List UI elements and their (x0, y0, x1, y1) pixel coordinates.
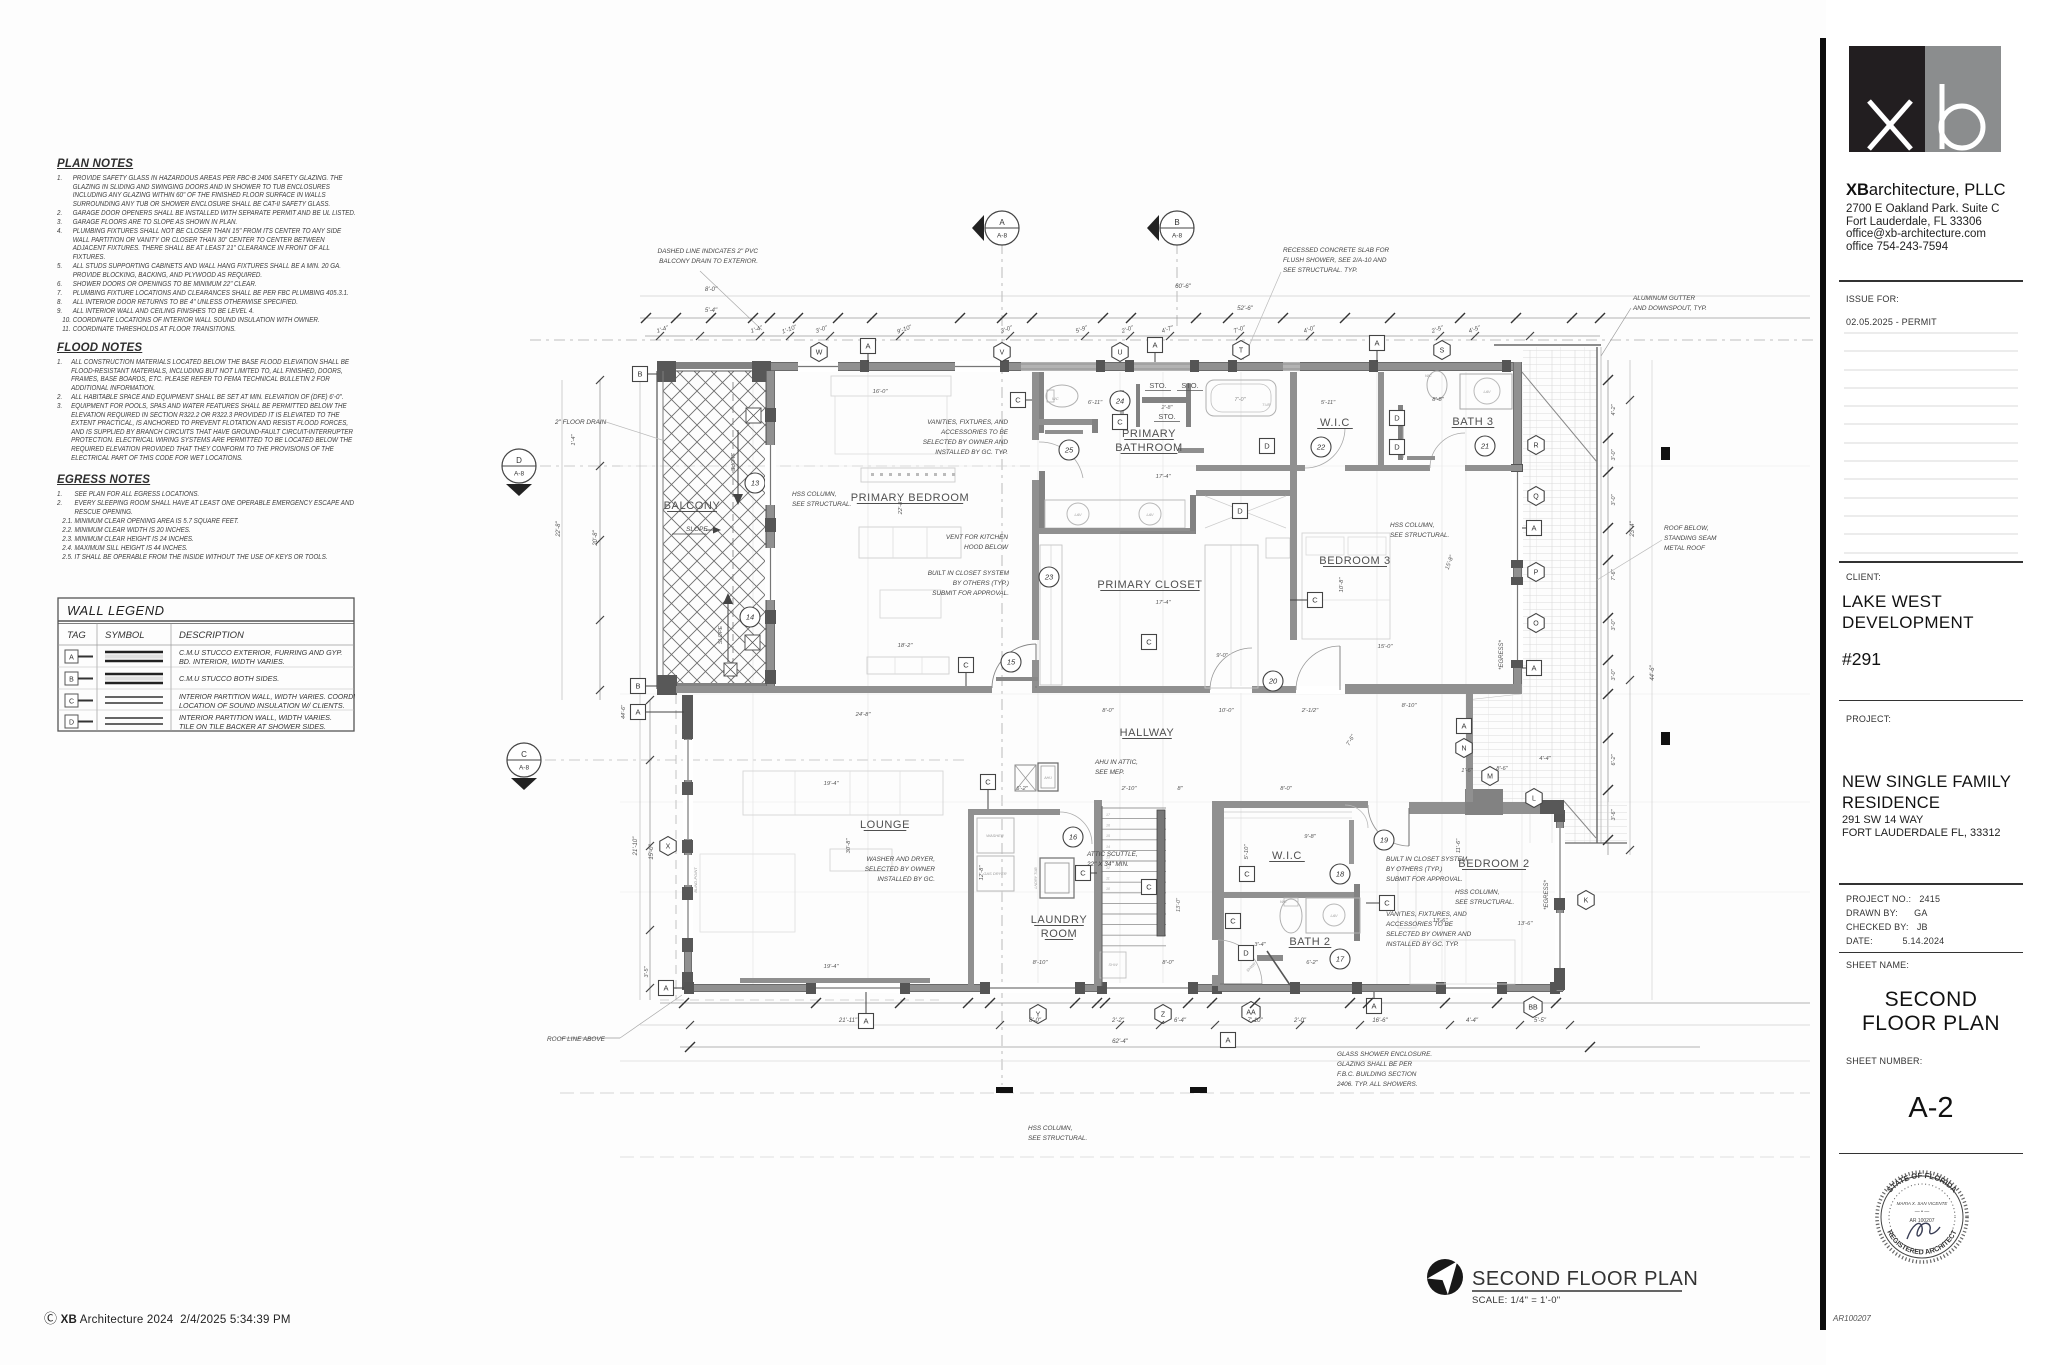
svg-text:17'-4": 17'-4" (1156, 474, 1172, 480)
svg-text:D: D (1394, 443, 1400, 452)
svg-text:C: C (963, 661, 969, 670)
svg-text:A-8: A-8 (997, 233, 1008, 240)
svg-text:7'-0": 7'-0" (1235, 397, 1247, 403)
svg-text:A-8: A-8 (1172, 233, 1183, 240)
svg-text:1'-4": 1'-4" (571, 433, 577, 445)
svg-text:19'-4": 19'-4" (824, 964, 840, 970)
svg-text:WC: WC (1280, 899, 1287, 904)
svg-text:9'-8": 9'-8" (1304, 834, 1316, 840)
svg-text:ROOF LINE ABOVE: ROOF LINE ABOVE (547, 1036, 606, 1043)
svg-text:30'-8": 30'-8" (846, 838, 852, 854)
svg-text:60'-6": 60'-6" (1175, 283, 1192, 290)
svg-text:10'-0": 10'-0" (1219, 708, 1235, 714)
svg-text:BALCONY DRAIN TO EXTERIOR.: BALCONY DRAIN TO EXTERIOR. (659, 258, 758, 265)
svg-text:ALUMINUM GUTTER: ALUMINUM GUTTER (1632, 295, 1696, 302)
svg-text:BLIND-POINT: BLIND-POINT (693, 867, 698, 893)
svg-text:20: 20 (1268, 677, 1278, 686)
svg-text:22'-8": 22'-8" (556, 520, 562, 537)
svg-text:8'-0": 8'-0" (1162, 960, 1174, 966)
svg-text:LNDRY TUB: LNDRY TUB (1034, 867, 1038, 889)
svg-text:22'-8": 22'-8" (898, 499, 904, 516)
svg-text:AA: AA (1246, 1010, 1256, 1017)
svg-text:V: V (1000, 350, 1005, 357)
svg-text:D: D (1394, 414, 1400, 423)
svg-text:BY OTHERS (TYP.): BY OTHERS (TYP.) (953, 580, 1009, 587)
svg-text:BEDROOM 3: BEDROOM 3 (1319, 555, 1390, 567)
svg-text:WC: WC (1425, 373, 1432, 378)
svg-text:STATE OF FLORIDA: STATE OF FLORIDA (1885, 1171, 1959, 1195)
svg-text:STO.: STO. (1158, 412, 1175, 421)
svg-text:AHU IN ATTIC,: AHU IN ATTIC, (1094, 759, 1138, 766)
svg-text:W: W (816, 350, 823, 357)
svg-text:6'-2": 6'-2" (1016, 786, 1028, 792)
svg-text:U: U (1117, 350, 1122, 357)
svg-text:T: T (1239, 348, 1244, 355)
svg-text:20'-8": 20'-8" (593, 529, 599, 546)
svg-text:A: A (863, 1017, 868, 1026)
svg-text:ROOM: ROOM (1041, 928, 1078, 940)
svg-text:LAV: LAV (1075, 513, 1082, 517)
svg-text:7'-0": 7'-0" (1233, 325, 1247, 335)
svg-text:BALCONY: BALCONY (664, 500, 721, 512)
svg-text:BB: BB (1528, 1005, 1538, 1012)
svg-text:A: A (1152, 341, 1157, 350)
svg-text:LOUNGE: LOUNGE (860, 819, 910, 831)
svg-text:6'-4": 6'-4" (1174, 1018, 1187, 1024)
svg-text:WASHER: WASHER (986, 833, 1004, 838)
svg-text:LAV: LAV (1331, 914, 1338, 918)
svg-text:2'-1/2": 2'-1/2" (1301, 708, 1319, 714)
svg-text:BUILT IN CLOSET SYSTEM: BUILT IN CLOSET SYSTEM (928, 570, 1010, 577)
svg-text:19: 19 (1380, 836, 1389, 845)
svg-text:SEE STRUCTURAL.: SEE STRUCTURAL. (1455, 899, 1514, 906)
svg-text:A: A (865, 342, 870, 351)
svg-text:HSS COLUMN,: HSS COLUMN, (1028, 1125, 1073, 1132)
svg-text:3'-4": 3'-4" (1254, 942, 1266, 948)
svg-text:24'-8": 24'-8" (855, 712, 872, 718)
svg-text:HALLWAY: HALLWAY (1120, 727, 1175, 739)
svg-text:15'-8": 15'-8" (1445, 554, 1456, 571)
svg-text:GLASS SHOWER ENCLOSURE.: GLASS SHOWER ENCLOSURE. (1337, 1051, 1432, 1058)
svg-text:3'-0": 3'-0" (1611, 493, 1617, 505)
svg-text:SUBMIT FOR APPROVAL.: SUBMIT FOR APPROVAL. (932, 590, 1009, 597)
svg-text:13'-6": 13'-6" (1433, 918, 1449, 924)
svg-text:M: M (1487, 774, 1493, 781)
svg-text:SELECTED BY OWNER AND: SELECTED BY OWNER AND (1386, 931, 1472, 938)
svg-text:11: 11 (1106, 877, 1110, 881)
svg-text:FLUSH SHOWER, SEE 2/A-10 AND: FLUSH SHOWER, SEE 2/A-10 AND (1283, 257, 1387, 264)
svg-text:LAUNDRY: LAUNDRY (1031, 914, 1088, 926)
svg-text:A: A (1461, 722, 1466, 731)
svg-text:SELECTED BY OWNER: SELECTED BY OWNER (865, 866, 936, 873)
svg-text:STANDING SEAM: STANDING SEAM (1664, 535, 1717, 542)
svg-text:BATH 3: BATH 3 (1452, 416, 1493, 428)
svg-text:SLOPE: SLOPE (686, 526, 708, 533)
svg-text:12'-8": 12'-8" (979, 865, 985, 881)
svg-text:A: A (663, 984, 668, 993)
svg-text:SEE MEP.: SEE MEP. (1095, 769, 1124, 776)
svg-text:3'-5": 3'-5" (644, 965, 650, 977)
svg-text:9'-0": 9'-0" (1216, 653, 1228, 659)
svg-text:SHWR: SHWR (1246, 962, 1257, 973)
svg-text:13'-0": 13'-0" (1176, 897, 1182, 912)
svg-text:3'-0": 3'-0" (815, 325, 829, 335)
svg-text:C: C (985, 778, 991, 787)
svg-text:5'-10": 5'-10" (1244, 844, 1250, 860)
svg-text:5'-5": 5'-5" (1534, 1018, 1547, 1024)
svg-text:19'-4": 19'-4" (824, 781, 840, 787)
svg-text:C: C (1312, 596, 1318, 605)
svg-text:PRIMARY BEDROOM: PRIMARY BEDROOM (851, 492, 970, 504)
svg-text:P: P (1534, 570, 1539, 577)
svg-text:22" X 34" MIN.: 22" X 34" MIN. (1086, 861, 1129, 868)
svg-text:5'-11": 5'-11" (1321, 400, 1336, 406)
svg-text:7'-6": 7'-6" (1611, 568, 1617, 580)
svg-text:24: 24 (1115, 397, 1124, 406)
svg-text:W.I.C: W.I.C (1272, 850, 1302, 862)
svg-text:8": 8" (1177, 786, 1183, 792)
svg-text:8'-6": 8'-6" (1496, 766, 1508, 772)
svg-text:W.I.C: W.I.C (1320, 417, 1350, 429)
svg-text:B: B (1174, 218, 1179, 227)
svg-text:21: 21 (1480, 442, 1489, 451)
svg-text:21'-10": 21'-10" (633, 836, 639, 856)
svg-text:4'-2": 4'-2" (1611, 403, 1617, 415)
svg-text:D: D (1237, 507, 1243, 516)
svg-text:PRIMARY: PRIMARY (1122, 428, 1176, 440)
svg-text:8'-0": 8'-0" (705, 286, 718, 293)
svg-text:WASHER AND DRYER,: WASHER AND DRYER, (866, 856, 935, 863)
svg-text:6'-2": 6'-2" (1611, 753, 1617, 765)
svg-text:8'-0": 8'-0" (1102, 708, 1114, 714)
svg-text:7'-6": 7'-6" (1346, 733, 1357, 747)
svg-text:21'-11": 21'-11" (838, 1018, 858, 1024)
svg-text:C: C (521, 750, 527, 759)
svg-text:STO.: STO. (1149, 381, 1166, 390)
svg-text:A: A (1374, 339, 1379, 348)
svg-text:HSS COLUMN,: HSS COLUMN, (792, 491, 837, 498)
svg-text:INSTALLED BY GC. TYP.: INSTALLED BY GC. TYP. (1386, 941, 1459, 948)
svg-text:SECOND FLOOR PLAN: SECOND FLOOR PLAN (1472, 1268, 1698, 1290)
svg-text:4'-0": 4'-0" (1303, 325, 1317, 335)
svg-text:K: K (1584, 898, 1589, 905)
svg-text:SELECTED BY OWNER AND: SELECTED BY OWNER AND (923, 439, 1009, 446)
svg-text:15'-0": 15'-0" (1378, 644, 1394, 650)
svg-text:9'-10": 9'-10" (896, 324, 913, 335)
svg-text:SLOPE: SLOPE (718, 625, 724, 644)
svg-text:7'-10": 7'-10" (1247, 1018, 1263, 1024)
svg-text:SEE STRUCTURAL.: SEE STRUCTURAL. (792, 501, 851, 508)
svg-text:D: D (516, 456, 522, 465)
svg-text:A-8: A-8 (519, 765, 530, 772)
svg-text:RECESSED CONCRETE SLAB FOR: RECESSED CONCRETE SLAB FOR (1283, 247, 1390, 254)
svg-text:A: A (999, 218, 1005, 227)
svg-text:*EGRESS*: *EGRESS* (1499, 640, 1505, 670)
svg-text:PRIMARY CLOSET: PRIMARY CLOSET (1097, 579, 1202, 591)
svg-text:C: C (1384, 899, 1390, 908)
svg-text:HSS COLUMN,: HSS COLUMN, (1390, 522, 1435, 529)
svg-text:22: 22 (1316, 443, 1326, 452)
svg-text:A-8: A-8 (514, 471, 525, 478)
svg-text:14: 14 (746, 613, 754, 622)
svg-text:A: A (1531, 664, 1536, 673)
svg-text:62'-4": 62'-4" (1112, 1038, 1129, 1045)
svg-text:C: C (1146, 638, 1152, 647)
svg-text:BATHROOM: BATHROOM (1115, 442, 1183, 454)
svg-text:17: 17 (1336, 955, 1345, 964)
svg-text:23'-4": 23'-4" (1630, 520, 1636, 537)
svg-text:Q: Q (1533, 494, 1539, 501)
svg-text:— • —: — • — (1915, 1209, 1930, 1215)
svg-text:13'-6": 13'-6" (1518, 921, 1534, 927)
svg-text:*EGRESS*: *EGRESS* (1544, 880, 1550, 910)
svg-text:SUBMIT FOR APPROVAL.: SUBMIT FOR APPROVAL. (1386, 876, 1463, 883)
svg-text:4'-5": 4'-5" (1468, 325, 1482, 335)
svg-text:SEE STRUCTURAL.: SEE STRUCTURAL. (1028, 1135, 1087, 1142)
svg-text:HOOD BELOW: HOOD BELOW (964, 544, 1009, 551)
svg-text:SHW: SHW (1108, 962, 1119, 967)
svg-text:ATTIC SCUTTLE,: ATTIC SCUTTLE, (1086, 851, 1138, 858)
svg-text:O: O (1533, 621, 1539, 628)
svg-text:B: B (635, 682, 640, 691)
svg-text:3'-6": 3'-6" (1611, 808, 1617, 820)
svg-text:C: C (1146, 883, 1152, 892)
svg-text:3'-0": 3'-0" (1611, 448, 1617, 460)
svg-text:DASHED LINE INDICATES 2" PVC: DASHED LINE INDICATES 2" PVC (657, 248, 758, 255)
svg-text:VANITIES, FIXTURES, AND: VANITIES, FIXTURES, AND (927, 419, 1008, 426)
svg-text:16'-0": 16'-0" (873, 389, 889, 395)
svg-text:X: X (666, 844, 671, 851)
svg-text:C: C (1230, 917, 1236, 926)
svg-text:VENT FOR KITCHEN: VENT FOR KITCHEN (946, 534, 1009, 541)
svg-text:A: A (1371, 1002, 1376, 1011)
svg-text:3'-0": 3'-0" (1611, 618, 1617, 630)
svg-text:AR 100207: AR 100207 (1909, 1218, 1934, 1224)
svg-text:SLOPE: SLOPE (729, 453, 735, 472)
svg-text:15'-0": 15'-0" (649, 843, 655, 859)
svg-text:44'-6": 44'-6" (621, 704, 627, 719)
svg-text:A: A (635, 708, 640, 717)
svg-text:C: C (1117, 418, 1123, 427)
svg-text:16'-6": 16'-6" (1372, 1018, 1388, 1024)
svg-text:15: 15 (1106, 834, 1110, 838)
svg-text:C: C (1244, 870, 1250, 879)
svg-text:8'-8": 8'-8" (1432, 397, 1444, 403)
svg-text:18'-2": 18'-2" (898, 643, 914, 649)
svg-text:2'-0": 2'-0" (1293, 1018, 1307, 1024)
svg-text:15: 15 (1007, 658, 1016, 667)
svg-text:BY OTHERS (TYP.): BY OTHERS (TYP.) (1386, 866, 1442, 873)
svg-text:WC: WC (1052, 396, 1059, 401)
svg-text:GAS DRYER: GAS DRYER (983, 871, 1007, 876)
svg-text:D: D (1243, 949, 1249, 958)
svg-text:R: R (1533, 443, 1538, 450)
svg-text:BUILT IN CLOSET SYSTEM: BUILT IN CLOSET SYSTEM (1386, 856, 1468, 863)
svg-text:25: 25 (1064, 446, 1074, 455)
svg-text:LAV: LAV (1484, 390, 1491, 394)
svg-text:13: 13 (751, 479, 760, 488)
svg-text:8'-10": 8'-10" (1033, 960, 1049, 966)
svg-text:L: L (1532, 796, 1536, 803)
svg-text:17'-4": 17'-4" (1156, 600, 1172, 606)
svg-text:MARIA X. SAN VICENTE: MARIA X. SAN VICENTE (1897, 1201, 1949, 1206)
svg-text:METAL ROOF: METAL ROOF (1664, 545, 1706, 552)
svg-text:SEE STRUCTURAL.: SEE STRUCTURAL. (1390, 532, 1449, 539)
svg-text:C: C (1015, 396, 1021, 405)
svg-text:8'-10": 8'-10" (1402, 703, 1418, 709)
svg-text:C: C (1080, 869, 1086, 878)
svg-text:S: S (1440, 348, 1445, 355)
svg-text:AHU: AHU (1043, 776, 1052, 780)
svg-text:INSTALLED BY GC. TYP.: INSTALLED BY GC. TYP. (935, 449, 1008, 456)
svg-text:SCALE: 1/4" = 1'-0": SCALE: 1/4" = 1'-0" (1472, 1295, 1560, 1306)
svg-text:AND DOWNSPOUT, TYP.: AND DOWNSPOUT, TYP. (1632, 305, 1707, 312)
svg-text:4'-4": 4'-4" (1539, 756, 1551, 762)
svg-text:STO.: STO. (1181, 381, 1198, 390)
svg-text:Z: Z (1161, 1012, 1166, 1019)
svg-text:BATH 2: BATH 2 (1289, 936, 1330, 948)
svg-text:ACCESSORIES TO BE: ACCESSORIES TO BE (940, 429, 1009, 436)
svg-text:14: 14 (1106, 845, 1110, 849)
svg-text:2'-10": 2'-10" (1121, 786, 1138, 792)
svg-text:5'-4": 5'-4" (705, 307, 718, 314)
svg-text:2'-8": 2'-8" (1161, 405, 1174, 411)
svg-text:B: B (637, 370, 642, 379)
svg-text:GLAZING SHALL BE PER: GLAZING SHALL BE PER (1337, 1061, 1413, 1068)
svg-text:6'-11": 6'-11" (1088, 400, 1103, 406)
svg-text:16: 16 (1106, 824, 1110, 828)
svg-text:8'-0": 8'-0" (1029, 1018, 1042, 1024)
svg-text:BEDROOM 2: BEDROOM 2 (1458, 858, 1529, 870)
svg-text:ROOF BELOW,: ROOF BELOW, (1664, 525, 1709, 532)
svg-text:11'-6": 11'-6" (1456, 838, 1462, 853)
svg-text:F.B.C. BUILDING SECTION: F.B.C. BUILDING SECTION (1337, 1071, 1417, 1078)
svg-text:SEE STRUCTURAL. TYP.: SEE STRUCTURAL. TYP. (1283, 267, 1357, 274)
svg-text:8'-0": 8'-0" (1280, 786, 1292, 792)
svg-text:VANITIES, FIXTURES, AND: VANITIES, FIXTURES, AND (1386, 911, 1467, 918)
svg-text:INSTALLED BY GC.: INSTALLED BY GC. (877, 876, 935, 883)
svg-text:1'-6": 1'-6" (1461, 768, 1473, 774)
svg-text:18: 18 (1336, 870, 1345, 879)
svg-text:16: 16 (1069, 833, 1078, 842)
svg-text:2406. TYP. ALL SHOWERS.: 2406. TYP. ALL SHOWERS. (1336, 1081, 1418, 1088)
svg-text:LAV: LAV (1147, 513, 1154, 517)
svg-text:4'-4": 4'-4" (1466, 1018, 1479, 1024)
svg-text:D: D (1264, 442, 1270, 451)
svg-text:2'-2": 2'-2" (1111, 1018, 1125, 1024)
svg-text:A: A (1531, 524, 1536, 533)
svg-text:3'-0": 3'-0" (1611, 668, 1617, 680)
svg-text:A: A (1225, 1036, 1230, 1045)
svg-text:HSS COLUMN,: HSS COLUMN, (1455, 889, 1500, 896)
svg-text:10'-8": 10'-8" (1339, 577, 1345, 593)
svg-text:1'-10": 1'-10" (781, 324, 798, 335)
svg-text:52'-6": 52'-6" (1237, 305, 1254, 312)
svg-text:6'-2": 6'-2" (1306, 960, 1318, 966)
svg-text:TUB: TUB (1262, 402, 1270, 407)
svg-text:44'-6": 44'-6" (1650, 664, 1656, 680)
svg-text:23: 23 (1044, 573, 1054, 582)
svg-text:17: 17 (1106, 813, 1111, 817)
svg-text:N: N (1461, 746, 1466, 753)
svg-text:2" FLOOR DRAIN: 2" FLOOR DRAIN (554, 419, 607, 426)
svg-text:10: 10 (1106, 887, 1110, 891)
